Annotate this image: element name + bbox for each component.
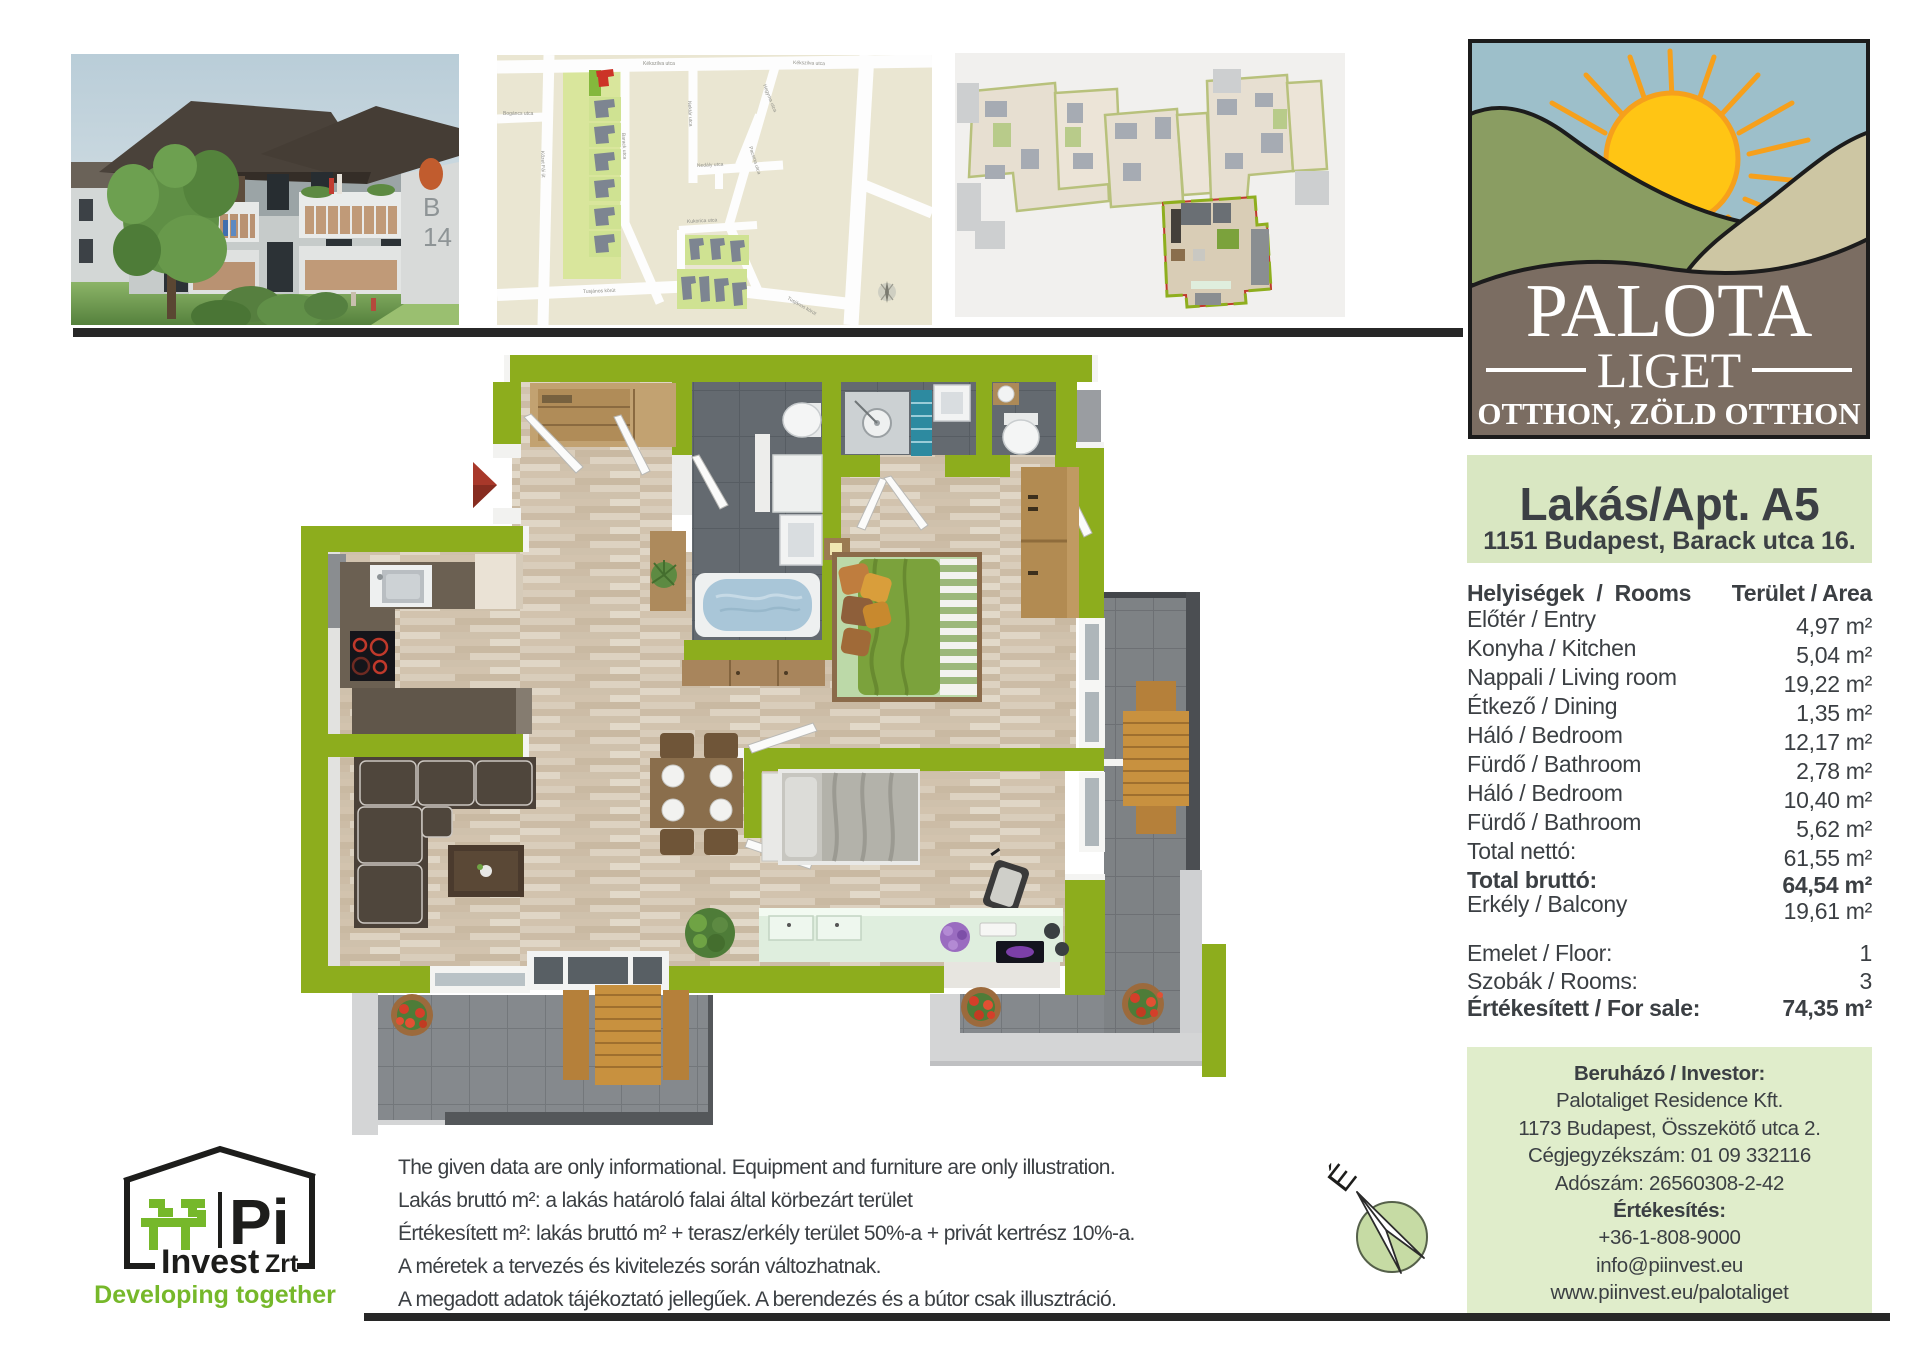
svg-text:Tusjános körút: Tusjános körút <box>583 288 616 295</box>
svg-text:B: B <box>423 192 440 222</box>
svg-text:Bogáncs utca: Bogáncs utca <box>503 111 534 117</box>
svg-text:Zrt: Zrt <box>265 1250 299 1278</box>
svg-text:14: 14 <box>423 222 452 252</box>
svg-text:Invest: Invest <box>161 1243 259 1281</box>
svg-text:Kékszilva utca: Kékszilva utca <box>793 60 825 67</box>
svg-text:Kőzet Fái út: Kőzet Fái út <box>539 151 546 178</box>
svg-text:LIGET: LIGET <box>1597 342 1741 398</box>
svg-text:Developing together: Developing together <box>94 1281 336 1309</box>
svg-text:PALOTA: PALOTA <box>1526 269 1813 353</box>
svg-text:OTTHON, ZÖLD OTTHON: OTTHON, ZÖLD OTTHON <box>1477 396 1860 431</box>
svg-text:Kékszilva utca: Kékszilva utca <box>643 61 675 67</box>
